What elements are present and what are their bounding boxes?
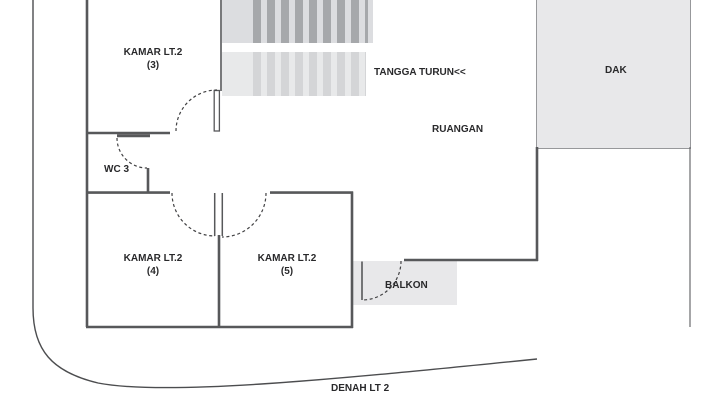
kamar3-door-leaf [214,91,219,132]
kamar5-door-swing-arc [222,193,266,237]
ruangan-label: RUANGAN [432,123,483,136]
kamar4-label: KAMAR LT.2 (4) [93,252,213,278]
dak-label: DAK [605,64,627,77]
balkon-label: BALKON [385,279,428,292]
kamar3-name: KAMAR LT.2 [124,47,183,58]
kamar4-number: (4) [93,265,213,278]
kamar5-name: KAMAR LT.2 [258,253,317,264]
stairs-label: TANGGA TURUN<< [374,66,466,79]
kamar3-number: (3) [93,59,213,72]
plan-caption: DENAH LT 2 [331,382,389,395]
wc3-label: WC 3 [104,163,129,176]
kamar4-name: KAMAR LT.2 [124,253,183,264]
kamar4-door-swing-arc [172,193,215,236]
floor-plan-canvas: KAMAR LT.2 (3) TANGGA TURUN<< DAK RUANGA… [0,0,720,420]
kamar3-label: KAMAR LT.2 (3) [93,46,213,72]
kamar5-number: (5) [227,265,347,278]
kamar5-label: KAMAR LT.2 (5) [227,252,347,278]
kamar3-door-swing-arc [176,90,217,131]
